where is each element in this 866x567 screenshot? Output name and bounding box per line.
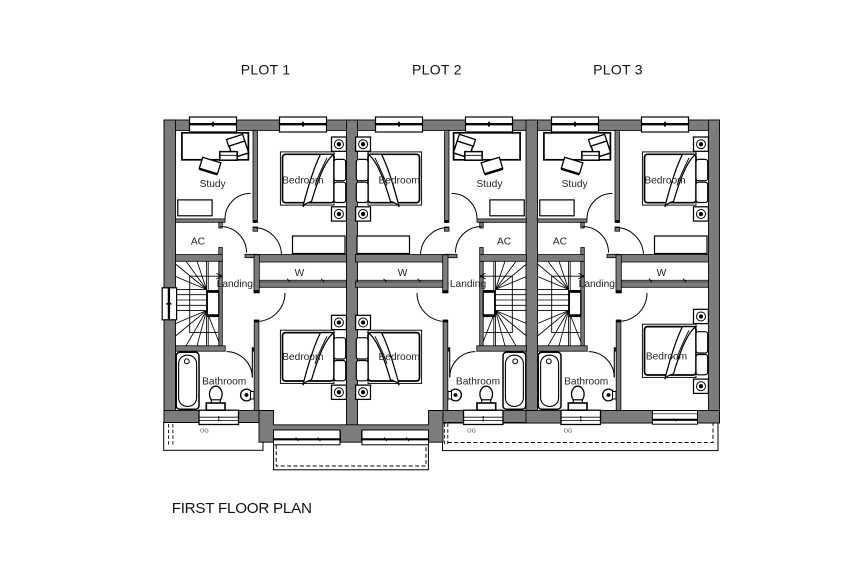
svg-text:Bathroom: Bathroom — [564, 377, 608, 388]
svg-text:Landing: Landing — [579, 279, 616, 290]
svg-text:W: W — [398, 268, 408, 279]
svg-text:Study: Study — [562, 179, 589, 190]
svg-text:Landing: Landing — [217, 279, 254, 290]
svg-text:PLOT 1: PLOT 1 — [241, 62, 291, 78]
svg-text:PLOT 2: PLOT 2 — [412, 62, 462, 78]
svg-text:Bedroom: Bedroom — [282, 176, 323, 187]
svg-text:Landing: Landing — [450, 279, 487, 290]
svg-text:Study: Study — [476, 179, 503, 190]
svg-text:OG: OG — [564, 428, 573, 434]
svg-text:OG: OG — [467, 428, 476, 434]
svg-text:W: W — [657, 268, 667, 279]
svg-text:Bedroom: Bedroom — [644, 176, 685, 187]
svg-text:OG: OG — [200, 428, 209, 434]
svg-text:Bathroom: Bathroom — [202, 377, 246, 388]
svg-text:AC: AC — [191, 237, 205, 248]
svg-text:Bathroom: Bathroom — [456, 377, 500, 388]
svg-text:PLOT 3: PLOT 3 — [593, 62, 643, 78]
svg-text:Bedroom: Bedroom — [282, 352, 323, 363]
svg-text:Bedroom: Bedroom — [379, 176, 420, 187]
svg-text:AC: AC — [553, 237, 567, 248]
svg-text:Bedroom: Bedroom — [379, 352, 420, 363]
svg-text:Study: Study — [200, 179, 227, 190]
svg-text:FIRST FLOOR PLAN: FIRST FLOOR PLAN — [172, 500, 312, 517]
svg-text:W: W — [295, 268, 305, 279]
svg-text:Bedroom: Bedroom — [646, 352, 687, 363]
svg-text:AC: AC — [497, 237, 511, 248]
